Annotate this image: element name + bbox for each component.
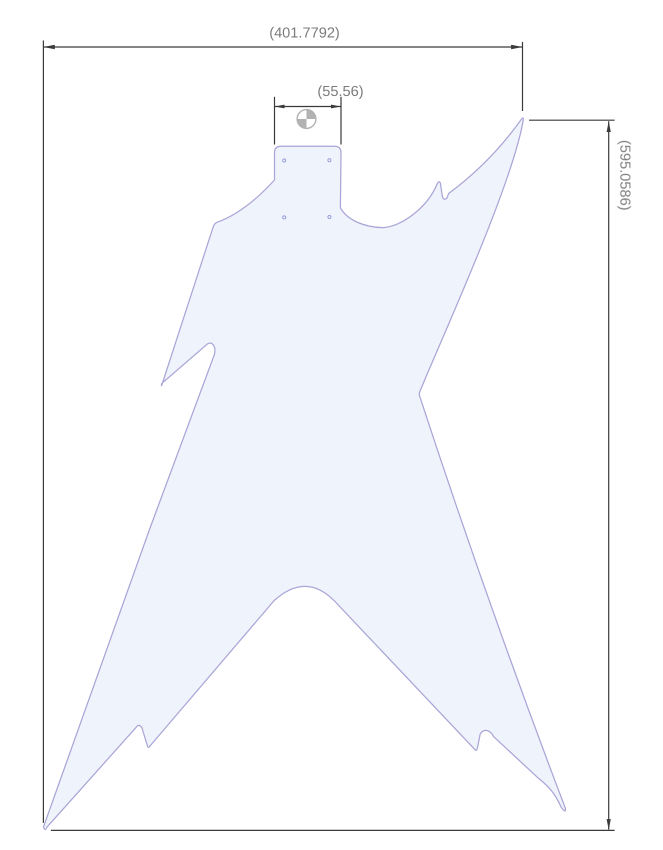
svg-text:(595.0586): (595.0586) — [617, 140, 633, 211]
svg-text:(401.7792): (401.7792) — [269, 26, 340, 42]
svg-text:(55.56): (55.56) — [317, 84, 363, 100]
